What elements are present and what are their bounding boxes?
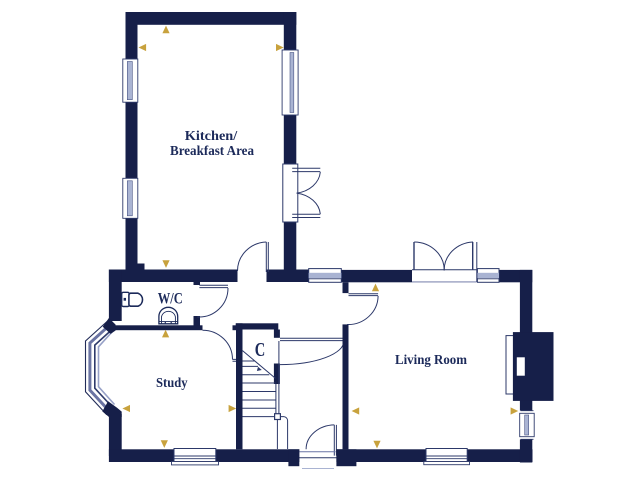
- svg-text:Study: Study: [156, 376, 188, 391]
- svg-text:W/C: W/C: [158, 290, 183, 307]
- svg-text:Kitchen/: Kitchen/: [185, 129, 239, 144]
- svg-text:C: C: [255, 339, 266, 361]
- svg-text:Living Room: Living Room: [395, 353, 467, 368]
- svg-text:Breakfast Area: Breakfast Area: [170, 144, 254, 159]
